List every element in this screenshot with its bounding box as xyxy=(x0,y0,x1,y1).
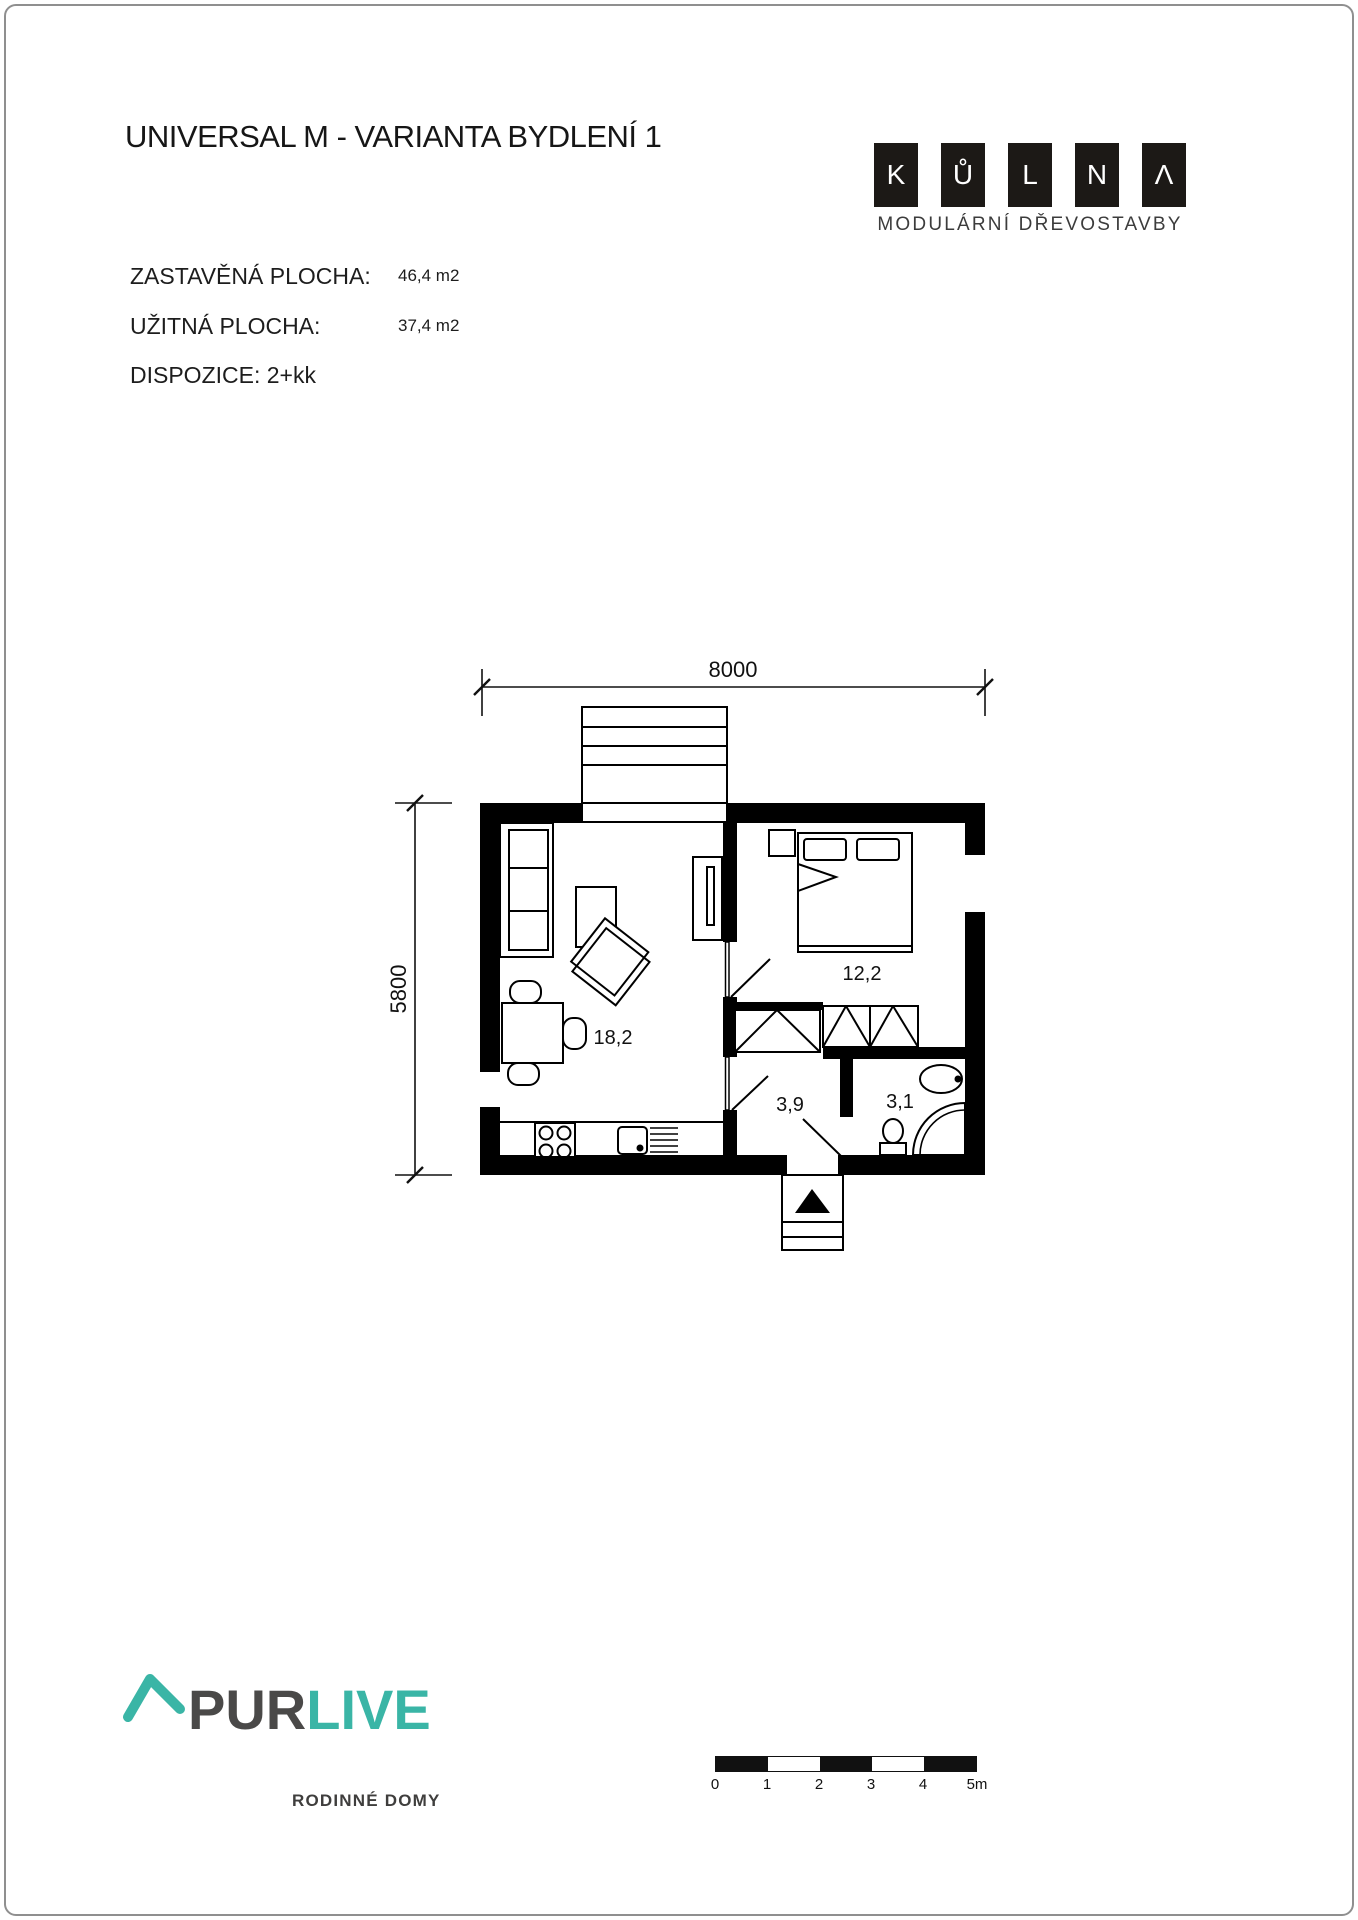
purlive-logo: PURLIVE xyxy=(188,1682,431,1738)
spec-row-layout: DISPOZICE: 2+kk xyxy=(130,362,550,390)
scale-segment xyxy=(716,1757,768,1771)
purlive-roof-icon xyxy=(122,1670,186,1722)
logo-letter: N xyxy=(1087,161,1107,189)
room-label-bath: 3,1 xyxy=(886,1091,914,1113)
room-label-living: 18,2 xyxy=(594,1027,633,1049)
chair xyxy=(563,1018,586,1049)
tv-bench xyxy=(693,857,722,940)
spec-label: ZASTAVĚNÁ PLOCHA: xyxy=(130,263,371,289)
sofa xyxy=(500,823,553,957)
logo-letter-box: N xyxy=(1075,143,1119,207)
brand-tagline: RODINNÉ DOMY xyxy=(292,1791,441,1811)
wardrobe-hall xyxy=(735,1010,820,1052)
pillow xyxy=(804,839,846,860)
scale-tick: 5m xyxy=(967,1776,988,1793)
spec-row-usable-area: UŽITNÁ PLOCHA: 37,4 m2 xyxy=(130,313,550,341)
logo-letter-box: L xyxy=(1008,143,1052,207)
logo-letter-box: K xyxy=(874,143,918,207)
nightstand xyxy=(769,830,795,856)
chair xyxy=(508,1063,539,1085)
logo-subtitle: MODULÁRNÍ DŘEVOSTAVBY xyxy=(872,214,1188,236)
double-bed xyxy=(798,833,912,952)
window-right xyxy=(965,855,985,912)
entry-door-opening xyxy=(787,1155,838,1175)
washbasin xyxy=(920,1065,962,1093)
dimension-height-label: 5800 xyxy=(386,965,411,1014)
logo-letter: K xyxy=(887,161,906,189)
stove xyxy=(535,1123,575,1158)
scale-segment xyxy=(820,1757,872,1771)
spec-value: 46,4 m2 xyxy=(398,266,459,286)
logo-letter-box: Λ xyxy=(1142,143,1186,207)
scale-tick: 2 xyxy=(815,1776,823,1793)
dimension-width-label: 8000 xyxy=(709,657,758,682)
pillow xyxy=(857,839,899,860)
deck xyxy=(582,707,727,822)
logo-letter: Λ xyxy=(1155,161,1174,189)
room-label-bedroom: 12,2 xyxy=(843,963,882,985)
scale-tick: 3 xyxy=(867,1776,875,1793)
scale-tick: 4 xyxy=(919,1776,927,1793)
logo-letter: L xyxy=(1022,161,1038,189)
bedroom-door-leaf xyxy=(726,942,730,997)
wardrobe-bedroom xyxy=(823,1006,918,1047)
hall-door-leaf xyxy=(726,1057,730,1110)
chair xyxy=(510,981,541,1003)
scale-tick: 0 xyxy=(711,1776,719,1793)
entry-stairs xyxy=(782,1175,843,1250)
spec-label: DISPOZICE: 2+kk xyxy=(130,362,316,388)
scale-tick: 1 xyxy=(763,1776,771,1793)
room-label-hall: 3,9 xyxy=(776,1094,804,1116)
scale-bar xyxy=(715,1756,977,1772)
brand-suffix: LIVE xyxy=(306,1678,430,1741)
scale-segment xyxy=(872,1757,924,1771)
spec-value: 37,4 m2 xyxy=(398,316,459,336)
scale-segment xyxy=(768,1757,820,1771)
window-left xyxy=(480,1072,500,1107)
spec-row-built-area: ZASTAVĚNÁ PLOCHA: 46,4 m2 xyxy=(130,263,550,291)
logo-letter-box: Ů xyxy=(941,143,985,207)
scale-segment xyxy=(924,1757,976,1771)
kulna-logo: K Ů L N Λ xyxy=(874,143,1186,207)
toilet xyxy=(880,1119,906,1155)
logo-letter: Ů xyxy=(953,161,973,189)
brand-prefix: PUR xyxy=(188,1678,306,1741)
dining-table xyxy=(502,1003,563,1063)
document-page: UNIVERSAL M - VARIANTA BYDLENÍ 1 K Ů L N… xyxy=(0,0,1358,1920)
floor-plan: 8000 5800 xyxy=(380,630,1010,1270)
spec-label: UŽITNÁ PLOCHA: xyxy=(130,313,320,339)
page-title: UNIVERSAL M - VARIANTA BYDLENÍ 1 xyxy=(125,119,661,155)
